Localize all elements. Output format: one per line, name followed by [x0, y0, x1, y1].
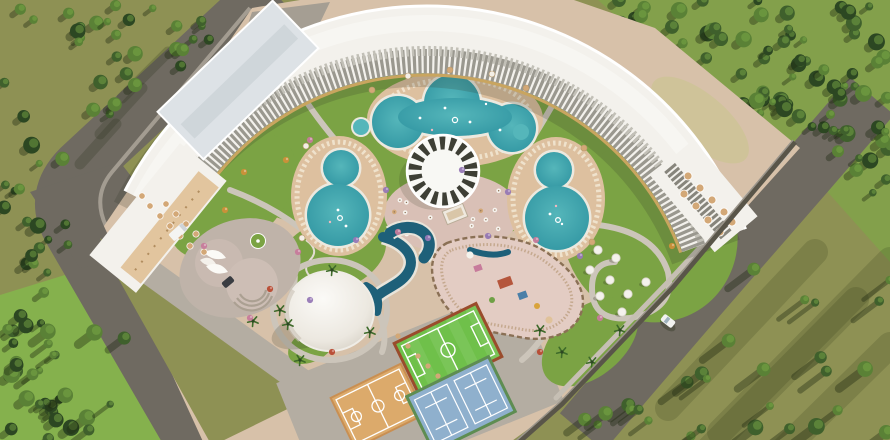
aerial-render: Aerial 3D architectural rendering of a c…	[0, 0, 890, 440]
island-marker	[256, 239, 260, 243]
jacuzzi-left	[353, 119, 369, 135]
jacuzzi-right	[513, 124, 529, 140]
resort-aerial-scene: Aerial 3D architectural rendering of a c…	[0, 0, 890, 440]
